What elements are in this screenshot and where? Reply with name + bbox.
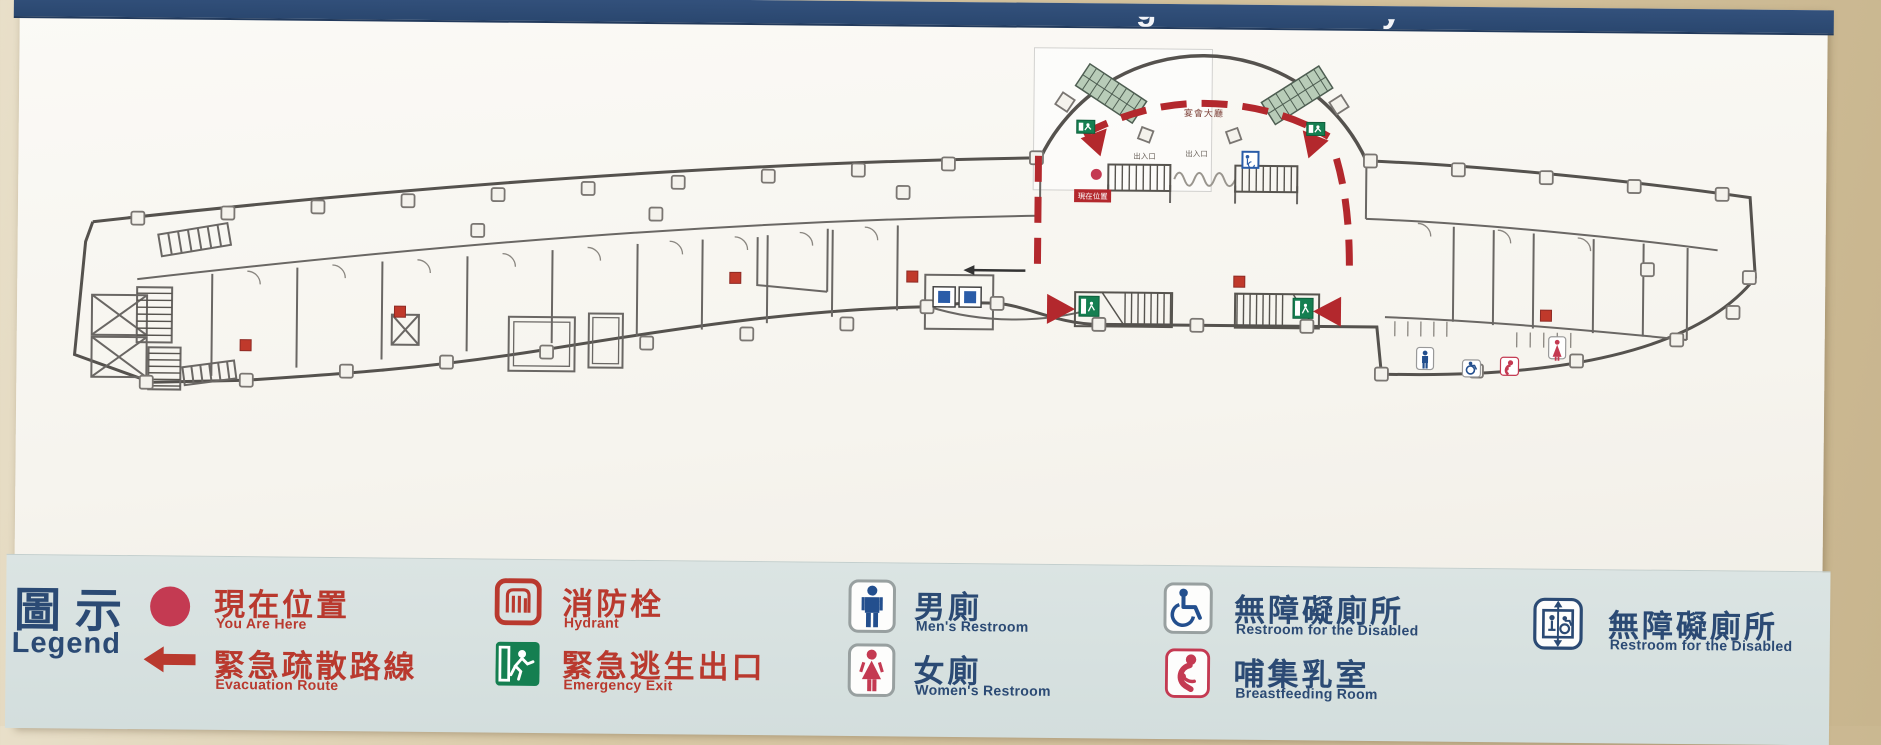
legend-mens-en: Men's Restroom <box>916 618 1029 635</box>
legend-title-en: Legend <box>12 627 121 661</box>
svg-text:出入口: 出入口 <box>1133 151 1156 161</box>
legend-womens-en: Women's Restroom <box>915 682 1051 699</box>
hydrant-marker <box>1540 310 1551 321</box>
interior-walls <box>136 149 1718 390</box>
mother-baby-icon <box>1164 648 1211 703</box>
hydrant-marker <box>1234 276 1245 287</box>
plan-women-icon <box>1549 337 1566 361</box>
door-arcs <box>247 212 1591 348</box>
wheelchair-icon <box>1163 582 1214 639</box>
legend-band: 圖示 Legend 現在位置 You Are Here 緊急疏散路線 Evacu… <box>5 554 1831 745</box>
arc-escalator-right <box>1261 66 1332 124</box>
hydrant-marker <box>240 340 251 351</box>
accessible-elevator-icon <box>1532 596 1585 657</box>
red-left-arrow-icon <box>143 644 195 679</box>
room-fixtures <box>508 313 623 372</box>
plan-wheelchair-icon <box>1462 360 1480 377</box>
svg-text:出入口: 出入口 <box>1185 148 1208 158</box>
legend-breastfeeding-en: Breastfeeding Room <box>1235 685 1377 702</box>
evacuation-sign-board: g y <box>13 0 1828 744</box>
man-icon <box>848 579 897 638</box>
hydrant-marker <box>907 271 918 282</box>
floor-plan: 現在位置 宴會大廳 出入口 出入口 <box>15 16 1826 573</box>
cropped-letter-y: y <box>1382 19 1408 29</box>
legend-emergency-exit-en: Emergency Exit <box>563 676 672 693</box>
red-dot-icon <box>148 584 192 633</box>
legend-evac-route-en: Evacuation Route <box>215 676 338 693</box>
legend-accessible-elevator-en: Restroom for the Disabled <box>1610 636 1793 654</box>
hydrant-icon <box>494 578 543 631</box>
legend-accessible-en: Restroom for the Disabled <box>1236 621 1419 639</box>
accessible-elevator-marker <box>1242 152 1258 168</box>
plan-breastfeeding-icon <box>1500 357 1518 375</box>
plan-men-icon <box>1416 347 1433 369</box>
svg-text:現在位置: 現在位置 <box>1078 191 1109 201</box>
hydrant-markers <box>240 265 1552 364</box>
legend-hydrant-en: Hydrant <box>564 614 619 631</box>
hydrant-marker <box>394 306 405 317</box>
legend-you-are-here-en: You Are Here <box>216 615 307 632</box>
svg-text:宴會大廳: 宴會大廳 <box>1184 107 1224 118</box>
building-outline <box>74 45 1757 398</box>
hydrant-marker <box>730 272 741 283</box>
cropped-letter-g: g <box>1136 17 1162 27</box>
running-man-exit-icon <box>495 642 539 691</box>
arrow-into-right-stair <box>1313 296 1341 326</box>
woman-icon <box>847 643 896 702</box>
